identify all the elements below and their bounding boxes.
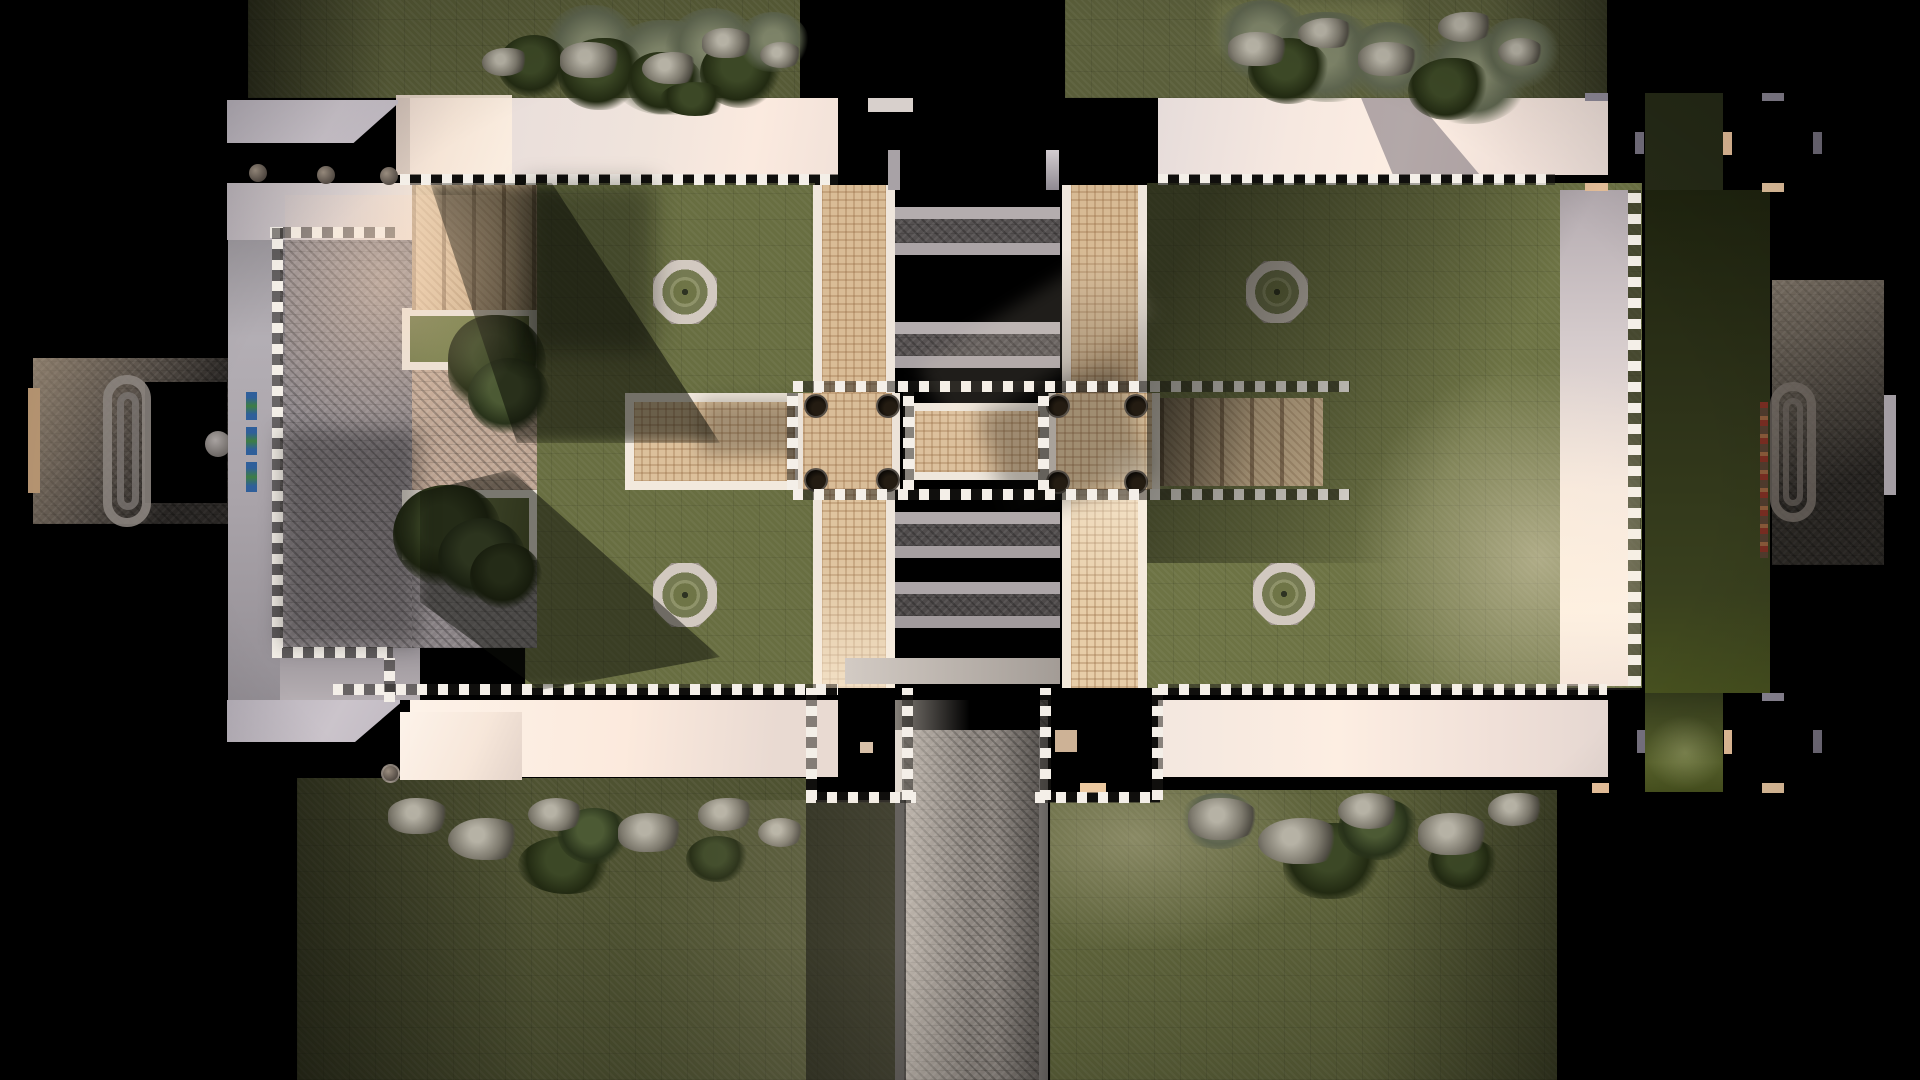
vignette xyxy=(0,0,1920,1080)
scene-viewport[interactable] xyxy=(0,0,1920,1080)
